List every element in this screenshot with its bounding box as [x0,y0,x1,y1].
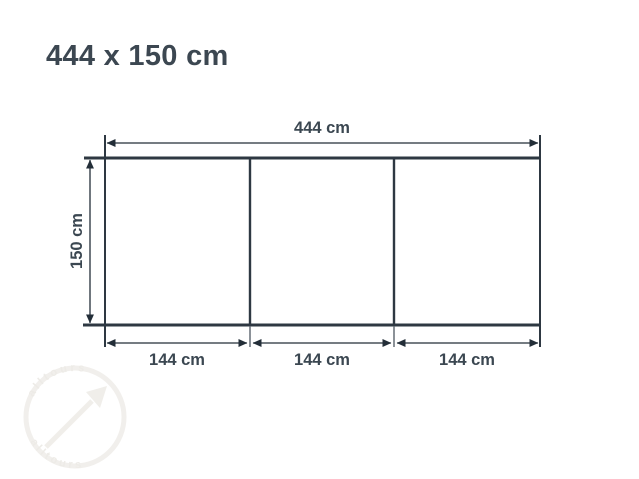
board-outline [83,135,541,347]
panel-1-width-label: 144 cm [149,351,205,369]
board-dimension-diagram: alltours alltours [0,0,639,479]
panel-3-width-label: 144 cm [439,351,495,369]
watermark-text-top: alltours [25,362,88,399]
dimension-lines [90,143,538,343]
watermark-arrow-shaft [46,401,92,447]
watermark-logo: alltours alltours [25,362,124,471]
watermark-text-bottom: alltours [28,437,85,472]
panel-2-width-label: 144 cm [294,351,350,369]
total-width-label: 444 cm [294,119,350,137]
height-label: 150 cm [68,213,86,269]
dimension-diagram-page: 444 x 150 cm alltours alltours [0,0,639,479]
